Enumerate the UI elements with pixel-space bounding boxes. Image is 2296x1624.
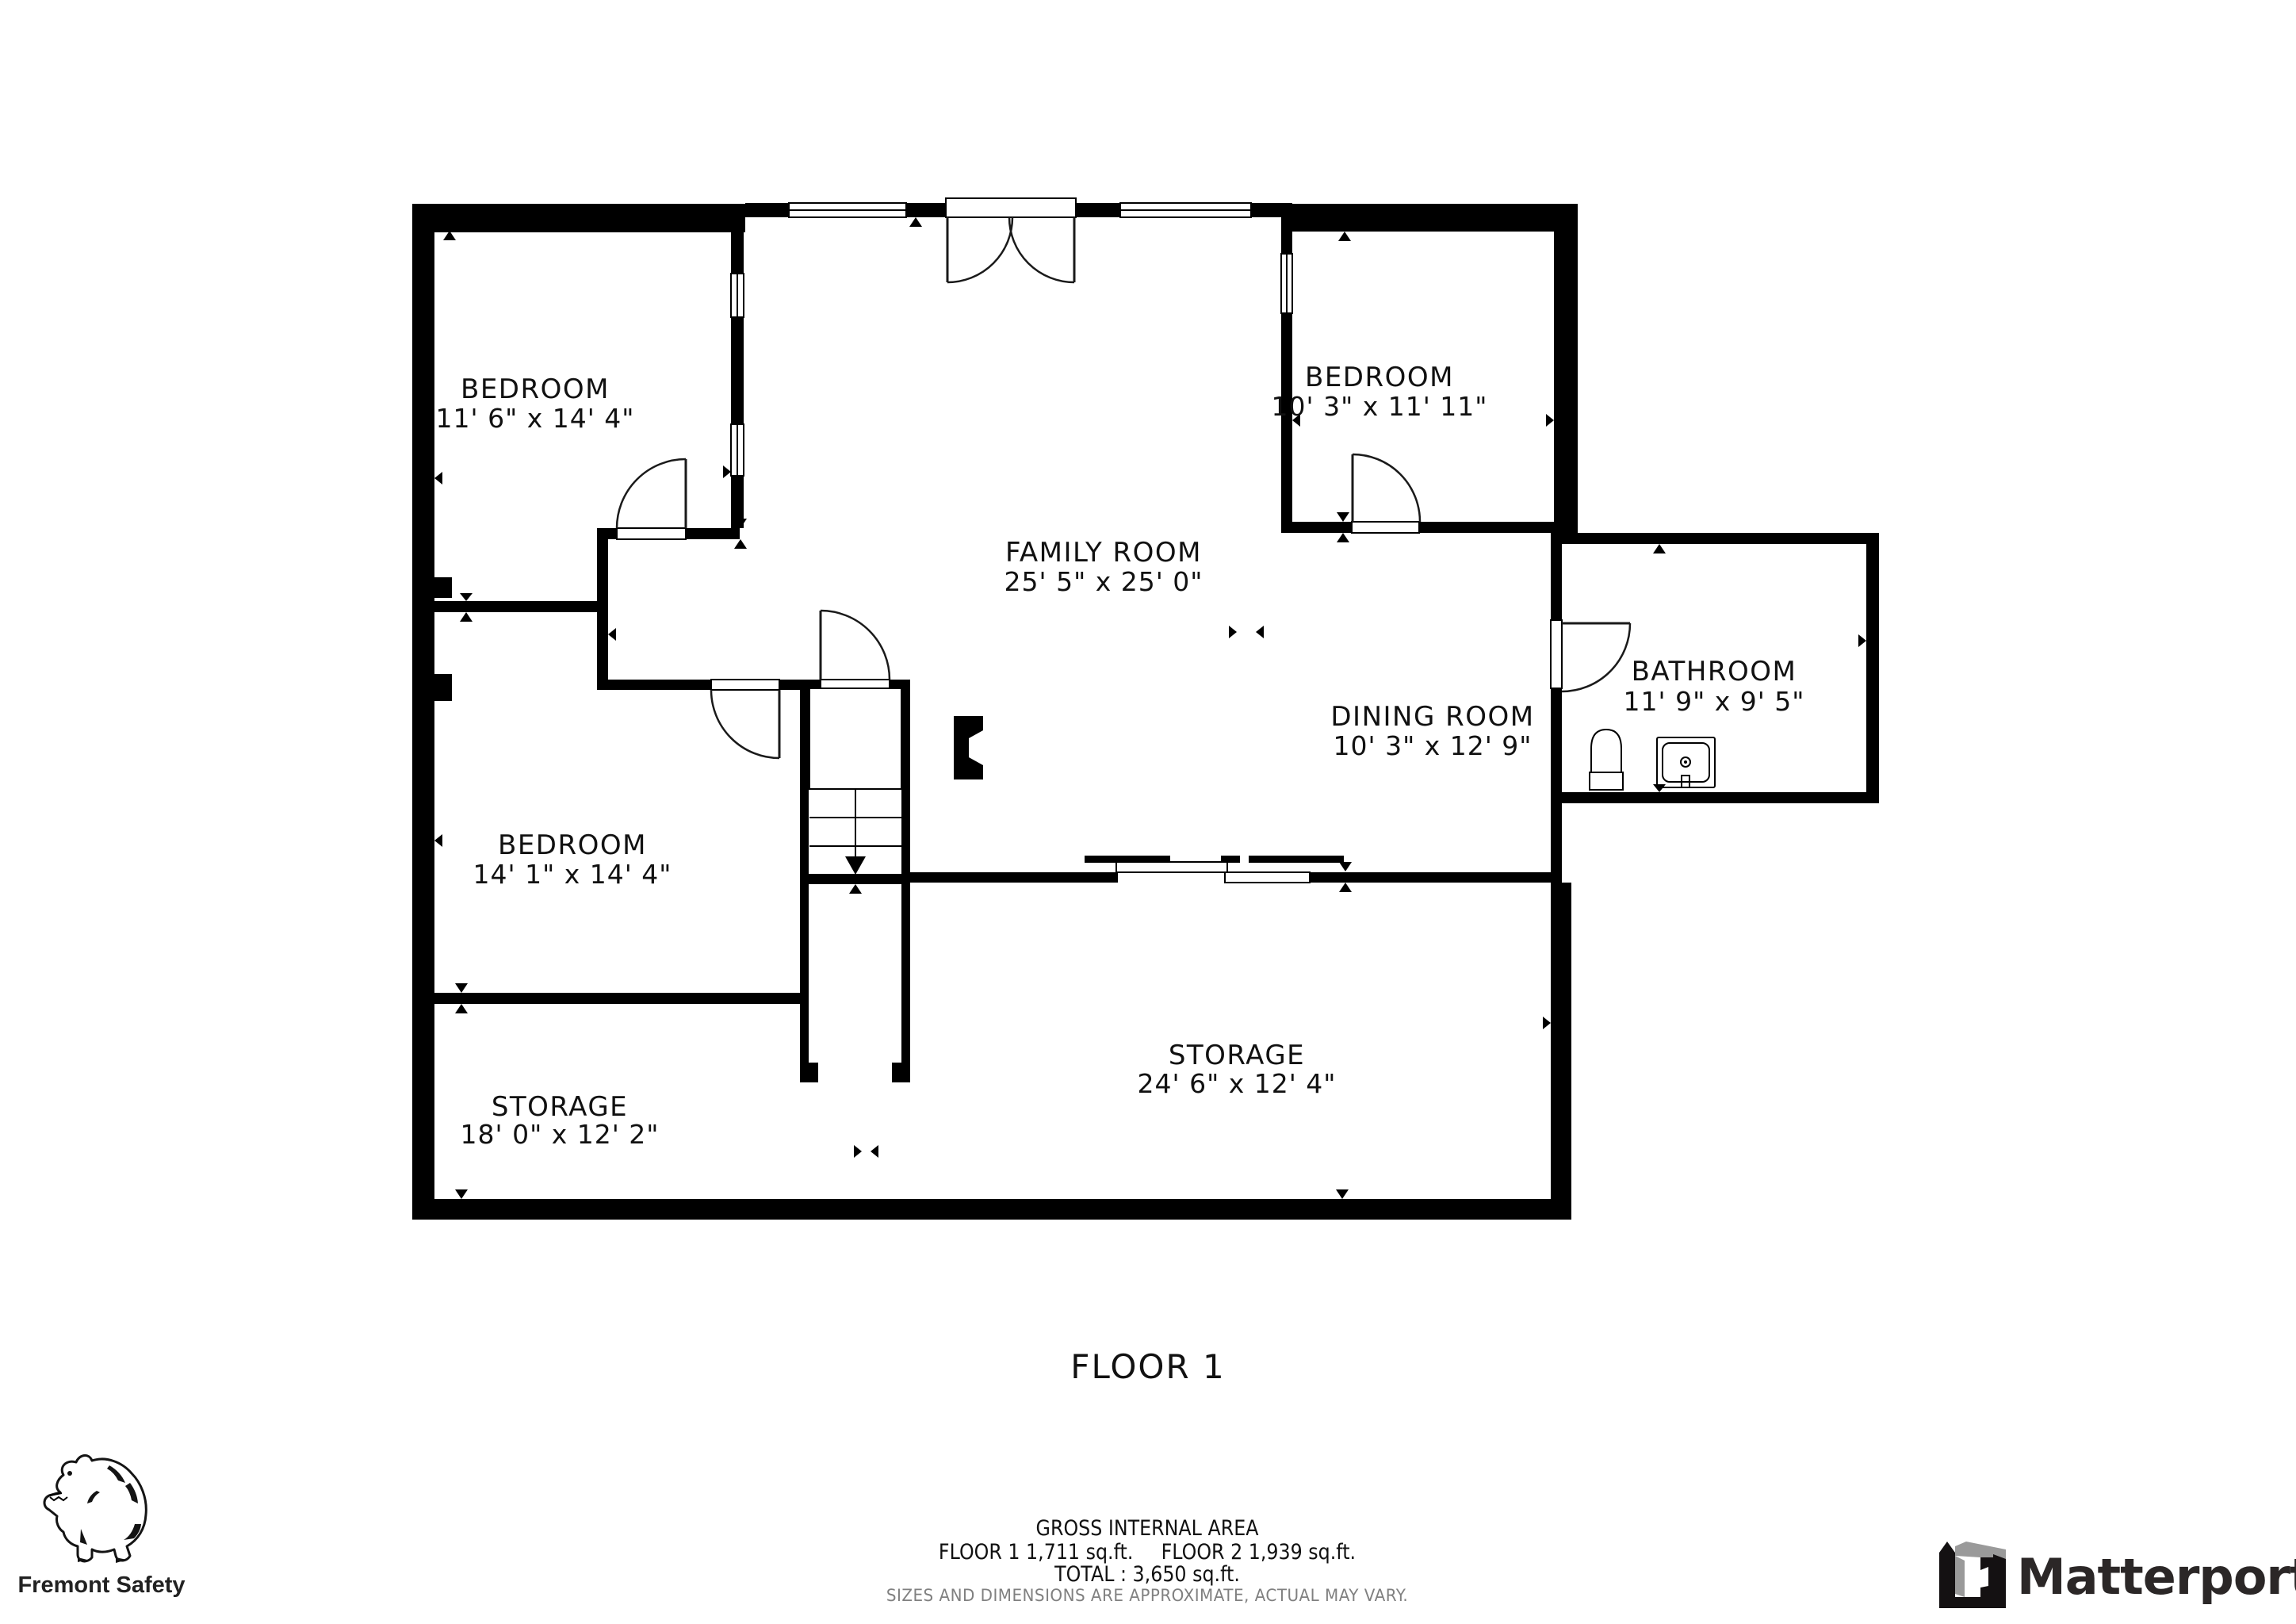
room-dims-bedroom-top-right: 10' 3" x 11' 11" [1272,391,1488,422]
french-door-family-room [946,198,1076,282]
fremont-safety-logo: Fremont Safety [17,1455,185,1598]
staircase [809,688,901,875]
door-bedroom-top-right [1352,454,1420,533]
room-dims-family-room: 25' 5" x 25' 0" [1004,566,1203,597]
door-bedroom-left [711,680,779,758]
room-dims-dining-room: 10' 3" x 12' 9" [1334,730,1533,761]
windows [731,203,1292,476]
window-top-left [789,203,906,217]
room-label-dining-room: DINING ROOM [1330,701,1534,733]
footer-area-summary: GROSS INTERNAL AREA FLOOR 1 1,711 sq.ft.… [886,1515,1408,1606]
room-labels: BEDROOM 11' 6" x 14' 4" BEDROOM 10' 3" x… [436,362,1805,1150]
floorplan-page: BEDROOM 11' 6" x 14' 4" BEDROOM 10' 3" x… [0,0,2296,1624]
sink [1657,737,1715,787]
room-label-bedroom-top-right: BEDROOM [1305,362,1454,393]
toilet [1590,730,1623,790]
room-label-bedroom-left: BEDROOM [498,829,647,861]
matterport-wordmark: Matterport [2017,1548,2296,1606]
room-dims-bedroom-left: 14' 1" x 14' 4" [473,859,672,890]
floor-title: FLOOR 1 [1070,1347,1225,1386]
bear-icon [44,1455,146,1563]
room-dims-storage-right: 24' 6" x 12' 4" [1138,1068,1337,1099]
room-dims-storage-left: 18' 0" x 12' 2" [461,1119,660,1150]
room-label-storage-left: STORAGE [492,1091,628,1123]
fremont-safety-label: Fremont Safety [17,1572,185,1598]
window-top-right [1120,203,1251,217]
room-dims-bathroom: 11' 9" x 9' 5" [1624,686,1805,717]
floorplan-canvas: BEDROOM 11' 6" x 14' 4" BEDROOM 10' 3" x… [0,0,2296,1624]
door-bedroom-top-left [617,459,686,539]
disclaimer-text: SIZES AND DIMENSIONS ARE APPROXIMATE, AC… [886,1586,1408,1606]
room-label-bathroom: BATHROOM [1632,656,1797,688]
wall-pilaster [434,674,452,701]
door-bathroom [1551,620,1630,691]
matterport-logo: Matterport [1939,1542,2296,1608]
room-dims-bedroom-top-left: 11' 6" x 14' 4" [436,403,635,434]
gross-internal-area-title: GROSS INTERNAL AREA [1036,1515,1259,1541]
total-area: TOTAL : 3,650 sq.ft. [1054,1561,1240,1587]
window-bedroom-wall-upper [731,274,744,317]
room-label-storage-right: STORAGE [1169,1040,1305,1071]
window-bedroom-wall-lower [731,424,744,476]
wall-pilaster [434,577,452,598]
window-family-right-wall [1281,254,1292,313]
sliding-door-storage [1085,856,1344,883]
door-stairs [821,611,890,688]
room-label-bedroom-top-left: BEDROOM [461,373,610,405]
fireplace [954,716,983,779]
stairs-down-arrow [845,856,866,875]
room-label-family-room: FAMILY ROOM [1005,537,1202,569]
matterport-cube-icon [1939,1542,2006,1608]
